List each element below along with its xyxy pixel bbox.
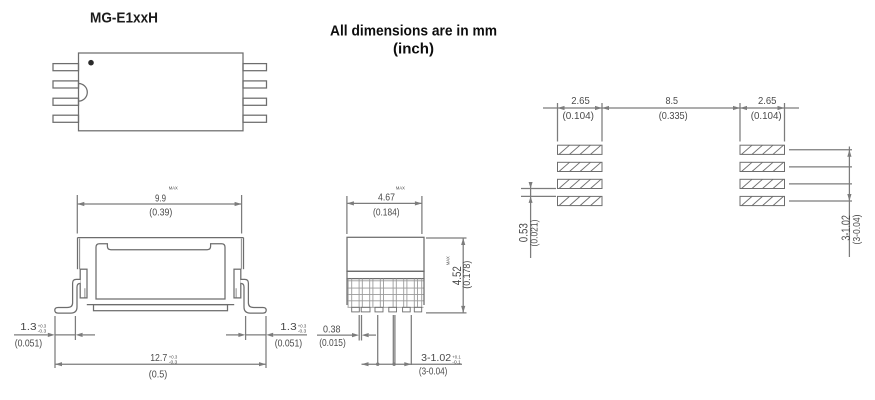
svg-text:8.5: 8.5 bbox=[666, 95, 679, 107]
svg-text:4.67: 4.67 bbox=[378, 192, 395, 204]
svg-text:(3-0.04): (3-0.04) bbox=[851, 215, 863, 245]
svg-text:(0.021): (0.021) bbox=[529, 220, 541, 247]
svg-text:MAX: MAX bbox=[445, 256, 450, 265]
svg-text:(0.051): (0.051) bbox=[275, 337, 303, 349]
svg-text:9.9: 9.9 bbox=[155, 193, 166, 205]
svg-text:-0.1: -0.1 bbox=[452, 359, 461, 364]
svg-text:(0.051): (0.051) bbox=[15, 337, 43, 349]
svg-text:2.65: 2.65 bbox=[758, 95, 777, 107]
svg-text:0.38: 0.38 bbox=[323, 323, 341, 335]
svg-text:(0.39): (0.39) bbox=[149, 207, 172, 219]
svg-text:(inch): (inch) bbox=[393, 42, 434, 58]
svg-text:-0.3: -0.3 bbox=[298, 328, 307, 333]
svg-text:(0.335): (0.335) bbox=[659, 110, 688, 122]
svg-text:MAX: MAX bbox=[396, 185, 405, 190]
svg-text:MG-E1xxH: MG-E1xxH bbox=[90, 10, 158, 27]
svg-text:1.3: 1.3 bbox=[280, 321, 297, 333]
svg-text:-0.3: -0.3 bbox=[169, 359, 178, 364]
svg-text:(0.184): (0.184) bbox=[373, 206, 400, 218]
svg-text:MAX: MAX bbox=[169, 186, 178, 191]
svg-text:(0.104): (0.104) bbox=[562, 110, 594, 122]
svg-text:1.3: 1.3 bbox=[20, 321, 37, 333]
svg-text:12.7: 12.7 bbox=[150, 352, 167, 364]
svg-text:3-1.02: 3-1.02 bbox=[421, 352, 451, 364]
svg-text:2.65: 2.65 bbox=[571, 95, 590, 107]
svg-text:(0.104): (0.104) bbox=[751, 110, 782, 122]
svg-text:-0.3: -0.3 bbox=[38, 328, 47, 333]
svg-text:All dimensions are in mm: All dimensions are in mm bbox=[330, 24, 497, 40]
svg-text:(0.5): (0.5) bbox=[149, 369, 168, 381]
svg-text:(0.015): (0.015) bbox=[319, 337, 346, 349]
svg-text:(0.178): (0.178) bbox=[461, 261, 473, 289]
svg-text:(3-0.04): (3-0.04) bbox=[419, 366, 448, 378]
